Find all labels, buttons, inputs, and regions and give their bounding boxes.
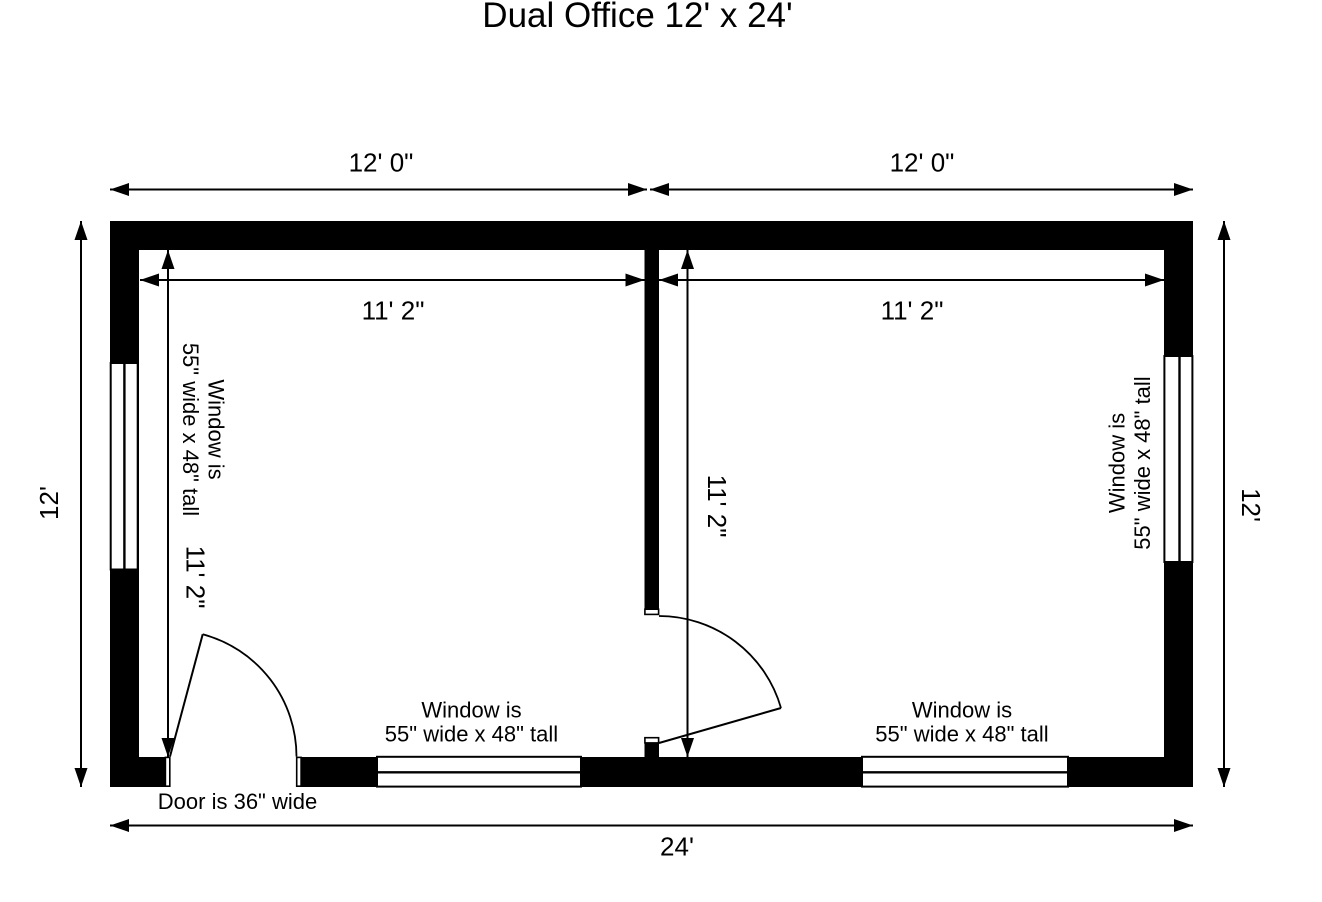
svg-text:55" wide x 48" tall: 55" wide x 48" tall	[385, 722, 558, 747]
svg-text:55" wide x 48" tall: 55" wide x 48" tall	[1130, 376, 1155, 549]
svg-text:Door is 36" wide: Door is 36" wide	[158, 789, 317, 814]
svg-text:Window is: Window is	[421, 698, 521, 723]
svg-text:24': 24'	[660, 832, 694, 862]
svg-text:Window is: Window is	[1104, 413, 1129, 513]
svg-text:Dual Office 12' x 24': Dual Office 12' x 24'	[482, 0, 792, 35]
svg-text:Window is: Window is	[912, 698, 1012, 723]
svg-text:12' 0": 12' 0"	[890, 148, 955, 178]
svg-text:55" wide x 48" tall: 55" wide x 48" tall	[875, 722, 1048, 747]
svg-text:11' 2": 11' 2"	[362, 296, 425, 326]
svg-text:12' 0": 12' 0"	[349, 148, 414, 178]
svg-text:55" wide x 48" tall: 55" wide x 48" tall	[178, 343, 203, 516]
svg-text:11' 2": 11' 2"	[181, 546, 211, 609]
svg-text:12': 12'	[34, 486, 64, 520]
svg-text:11' 2": 11' 2"	[702, 475, 732, 538]
svg-text:11' 2": 11' 2"	[881, 296, 944, 326]
svg-text:12': 12'	[1236, 488, 1266, 522]
svg-text:Window is: Window is	[203, 379, 228, 479]
